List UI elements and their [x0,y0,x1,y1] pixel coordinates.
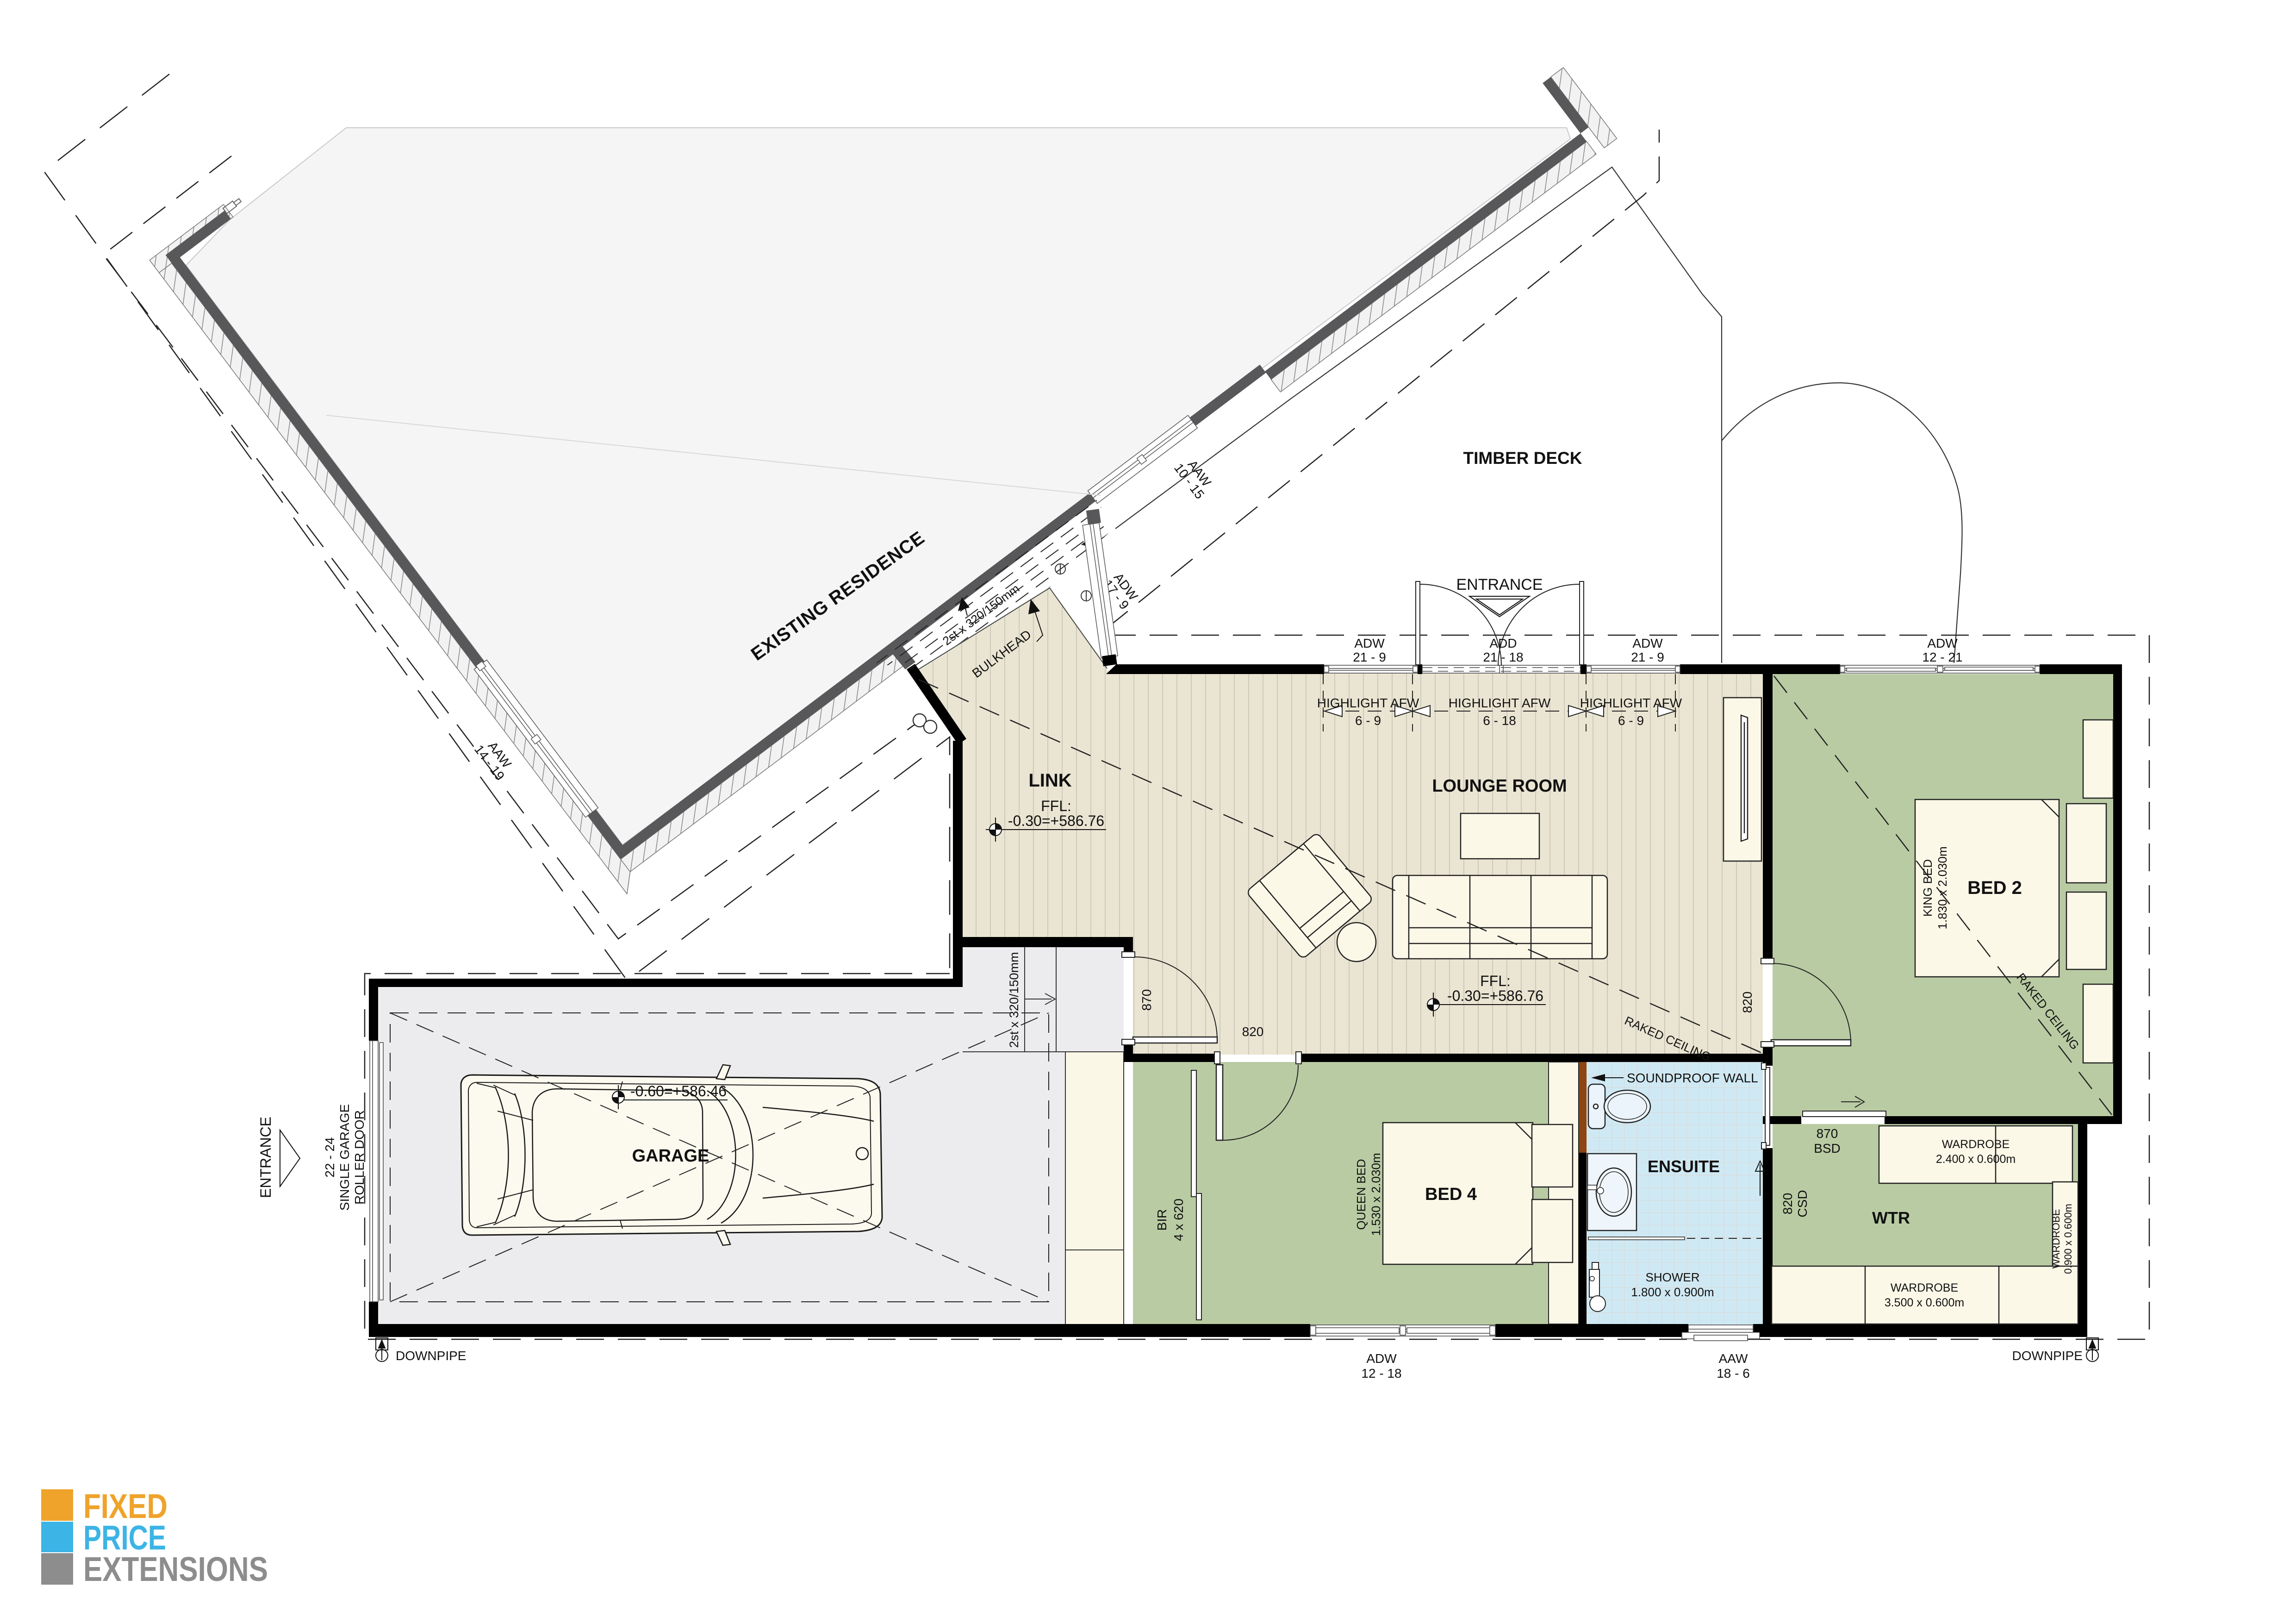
svg-text:1.800 x 0.900m: 1.800 x 0.900m [1631,1285,1714,1299]
svg-text:WARDROBE: WARDROBE [1942,1138,2010,1151]
svg-text:QUEEN BED: QUEEN BED [1354,1159,1368,1230]
svg-text:TIMBER DECK: TIMBER DECK [1463,449,1582,468]
svg-text:820: 820 [1780,1193,1795,1215]
svg-text:BIR: BIR [1155,1209,1169,1231]
svg-text:12 - 21: 12 - 21 [1922,650,1962,664]
svg-text:1.530 x 2.030m: 1.530 x 2.030m [1369,1153,1383,1236]
svg-text:-0.30=+586.76: -0.30=+586.76 [1008,812,1104,829]
svg-text:HIGHLIGHT AFW: HIGHLIGHT AFW [1317,696,1419,710]
svg-text:ENSUITE: ENSUITE [1648,1157,1720,1176]
svg-text:12 - 18: 12 - 18 [1361,1366,1401,1380]
svg-text:ENTRANCE: ENTRANCE [257,1117,274,1198]
svg-text:ADW: ADW [1354,636,1385,650]
svg-text:6 - 18: 6 - 18 [1483,713,1516,728]
svg-text:870: 870 [1139,989,1154,1011]
svg-text:1.830 x 2.030m: 1.830 x 2.030m [1935,846,1949,929]
svg-text:DOWNPIPE: DOWNPIPE [2012,1349,2083,1363]
svg-text:SINGLE GARAGE: SINGLE GARAGE [337,1104,352,1211]
svg-text:6 - 9: 6 - 9 [1355,713,1381,728]
svg-text:LOUNGE ROOM: LOUNGE ROOM [1432,776,1567,796]
svg-text:FFL:: FFL: [1041,798,1071,814]
svg-text:BED 4: BED 4 [1425,1185,1477,1204]
svg-text:-0.60=+586.46: -0.60=+586.46 [630,1083,727,1099]
svg-text:EXTENSIONS: EXTENSIONS [83,1550,268,1588]
svg-text:FFL:: FFL: [1480,973,1511,989]
svg-text:ADW: ADW [1366,1351,1397,1366]
svg-text:ADW: ADW [1632,636,1663,650]
svg-text:ENTRANCE: ENTRANCE [1456,576,1543,593]
svg-text:BED 2: BED 2 [1967,878,2022,898]
svg-text:ADW: ADW [1927,636,1958,650]
svg-text:820: 820 [1740,992,1755,1013]
svg-text:-0.30=+586.76: -0.30=+586.76 [1447,987,1543,1004]
svg-text:ROLLER DOOR: ROLLER DOOR [352,1110,367,1205]
svg-text:KING BED: KING BED [1921,859,1935,917]
svg-text:WARDROBE: WARDROBE [1891,1281,1958,1294]
svg-text:870: 870 [1817,1126,1838,1141]
svg-text:CSD: CSD [1795,1190,1810,1217]
svg-text:SOUNDPROOF WALL: SOUNDPROOF WALL [1627,1071,1758,1085]
svg-text:2st x 320/150mm: 2st x 320/150mm [1007,952,1021,1048]
svg-text:18 - 6: 18 - 6 [1717,1366,1750,1380]
svg-text:HIGHLIGHT AFW: HIGHLIGHT AFW [1449,696,1551,710]
svg-text:AAW: AAW [1719,1351,1748,1366]
svg-text:820: 820 [1242,1024,1264,1039]
svg-text:BSD: BSD [1814,1141,1841,1156]
svg-text:6 - 9: 6 - 9 [1618,713,1644,728]
svg-text:WARDROBE: WARDROBE [2050,1209,2062,1269]
svg-text:2.400 x 0.600m: 2.400 x 0.600m [1936,1153,2016,1166]
svg-text:3.500 x 0.600m: 3.500 x 0.600m [1885,1296,1964,1309]
svg-text:21 - 9: 21 - 9 [1353,650,1386,664]
svg-text:0.900 x 0.600m: 0.900 x 0.600m [2062,1204,2074,1274]
svg-text:SHOWER: SHOWER [1646,1270,1700,1284]
svg-text:HIGHLIGHT AFW: HIGHLIGHT AFW [1580,696,1682,710]
svg-text:WTR: WTR [1872,1208,1910,1227]
svg-text:21 - 9: 21 - 9 [1631,650,1664,664]
svg-text:22 - 24: 22 - 24 [323,1137,337,1177]
svg-text:GARAGE: GARAGE [632,1146,709,1166]
svg-text:DOWNPIPE: DOWNPIPE [396,1349,466,1363]
svg-text:4 x 620: 4 x 620 [1171,1199,1186,1241]
svg-text:21 - 18: 21 - 18 [1483,650,1523,664]
svg-text:LINK: LINK [1028,770,1071,791]
svg-text:ADD: ADD [1489,636,1517,650]
